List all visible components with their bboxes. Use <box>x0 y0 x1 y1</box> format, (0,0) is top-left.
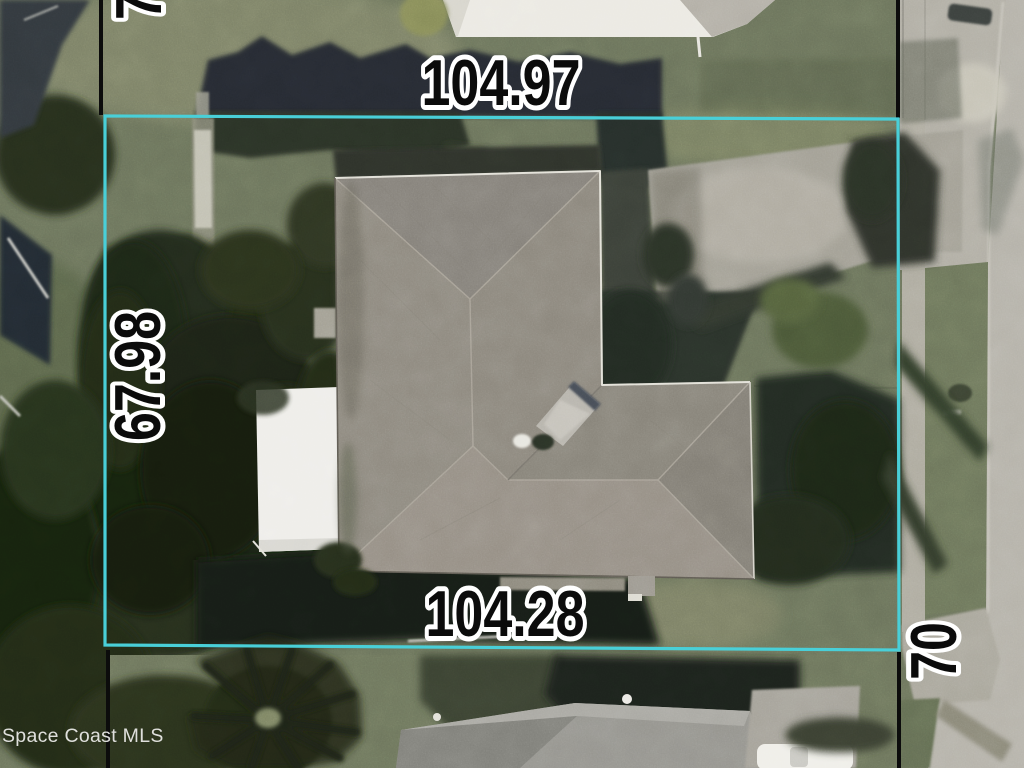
svg-text:104.28: 104.28 <box>425 579 584 651</box>
svg-text:70: 70 <box>899 622 971 680</box>
svg-text:67.98: 67.98 <box>103 311 175 441</box>
svg-text:70: 70 <box>104 0 176 20</box>
svg-text:Space Coast MLS: Space Coast MLS <box>2 725 164 747</box>
svg-text:104.97: 104.97 <box>421 48 580 120</box>
